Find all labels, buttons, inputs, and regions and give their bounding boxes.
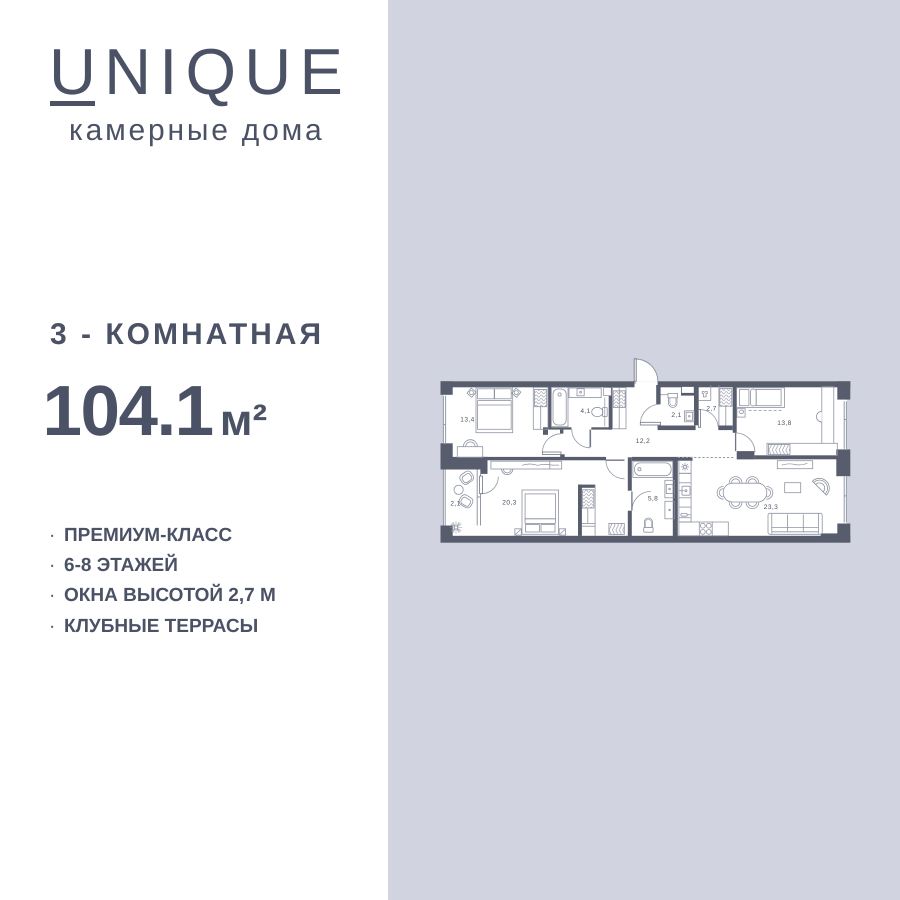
svg-text:5,8: 5,8 — [648, 496, 658, 503]
svg-text:20,3: 20,3 — [502, 500, 516, 507]
svg-text:13,8: 13,8 — [777, 420, 791, 427]
svg-text:12,2: 12,2 — [636, 438, 650, 445]
svg-text:13,4: 13,4 — [460, 417, 474, 424]
svg-text:4,1: 4,1 — [580, 408, 590, 415]
svg-text:2,7: 2,7 — [706, 406, 716, 413]
svg-text:2,1: 2,1 — [671, 412, 681, 419]
svg-text:23,3: 23,3 — [764, 504, 778, 511]
svg-text:2,1: 2,1 — [450, 501, 460, 508]
